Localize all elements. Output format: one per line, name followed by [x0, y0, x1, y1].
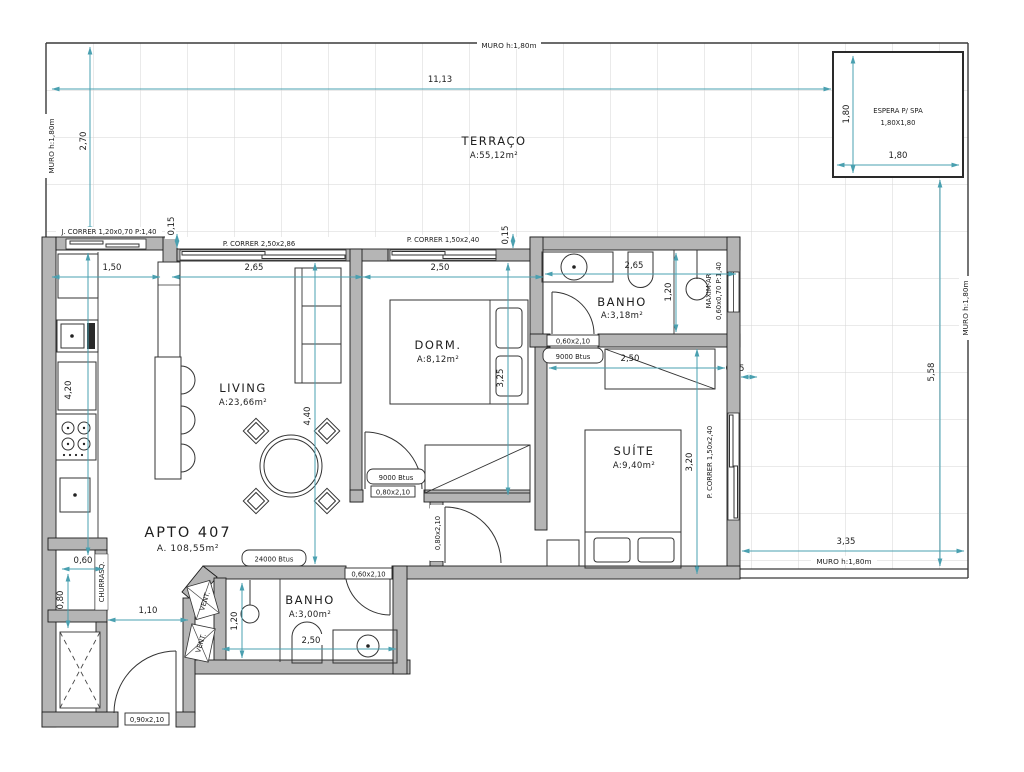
hvac-living-label: 24000 Btus — [255, 556, 294, 564]
wall-top-banho1 — [530, 237, 740, 250]
suite-name: SUÍTE — [614, 443, 655, 458]
dim-kitchen-h: 4,20 — [64, 381, 74, 400]
kitchen-appliance-knob — [73, 493, 77, 497]
dim-suite-h: 3,20 — [685, 453, 695, 472]
wall-bottom-b — [392, 566, 740, 579]
banho2-name: BANHO — [285, 593, 335, 607]
door-dorm-label: 0,80x2,10 — [376, 489, 410, 497]
island-stool-2 — [181, 406, 195, 434]
dim-terrace-width: 11,13 — [428, 75, 452, 85]
muro-right-label: MURO h:1,80m — [961, 280, 970, 335]
dim-kitchen-w: 1,50 — [103, 263, 122, 273]
banho2-sink-drain — [366, 644, 370, 648]
island-stool-1 — [181, 366, 195, 394]
wall-dorm-bottom-b — [424, 490, 530, 502]
dim-churrasq-h: 0,80 — [56, 591, 66, 610]
suite-pillow-2 — [638, 538, 674, 562]
wall-top-step — [163, 237, 177, 262]
stove-knob-4 — [81, 454, 83, 456]
living-area: A:23,66m² — [219, 398, 267, 408]
wall-dorm-bottom-a — [350, 490, 363, 502]
dim-banho1-w: 2,65 — [625, 261, 644, 271]
dim-spa-height: 1,80 — [842, 105, 852, 124]
stove-burner-dot-4 — [83, 443, 85, 445]
wall-banho2-bottom — [190, 660, 410, 674]
stove-burner-dot-2 — [83, 427, 85, 429]
door-banho2-label: 0,60x2,10 — [351, 571, 385, 579]
dim-living-w: 2,65 — [245, 263, 264, 273]
p-correr-living-label: P. CORRER 2,50x2,86 — [223, 240, 295, 248]
dim-banho1-h: 1,20 — [664, 283, 674, 302]
j-correr-label: J. CORRER 1,20x0,70 P:1,40 — [60, 228, 156, 236]
suite-nightstand — [547, 540, 579, 566]
dim-terrace-height: 2,70 — [79, 132, 89, 151]
dining-table — [260, 435, 322, 497]
floor-plan-sheet: MURO h:1,80m MURO h:1,80m MURO h:1,80m M… — [0, 0, 1024, 772]
hvac-dorm-label: 9000 Btus — [379, 474, 414, 482]
dorm-furniture — [390, 300, 530, 493]
dorm-name: DORM. — [415, 338, 462, 352]
floor-plan-drawing: MURO h:1,80m MURO h:1,80m MURO h:1,80m M… — [0, 0, 1024, 772]
door-banho1-label: 0,60x2,10 — [556, 338, 590, 346]
stove-knob-3 — [75, 454, 77, 456]
dorm-bed — [390, 300, 528, 404]
banho1-name: BANHO — [597, 295, 647, 309]
muro-bottom-label: MURO h:1,80m — [816, 557, 871, 566]
stove-burner-dot-3 — [67, 443, 69, 445]
stove-knob-2 — [69, 454, 71, 456]
kitchen-sink-drain — [70, 334, 74, 338]
island-stool-3 — [181, 444, 195, 472]
kitchen-stove — [56, 414, 96, 460]
dim-step-a: 0,15 — [167, 217, 177, 236]
wall-banho2-right — [393, 566, 407, 674]
p-correr-suite-label: P. CORRER 1,50x2,40 — [706, 426, 714, 498]
banho1-area: A:3,18m² — [601, 311, 643, 321]
dim-dorm-w: 2,50 — [431, 263, 450, 273]
wall-entry-jamb — [176, 712, 195, 727]
wall-banho2-left — [214, 578, 226, 672]
espera-spa-label: ESPERA P/ SPA — [873, 107, 923, 115]
wall-banho1-bottom-b — [598, 334, 740, 347]
banho1-sink-drain — [572, 265, 576, 269]
wall-dorm-right — [530, 237, 543, 347]
dim-dorm-h: 3,25 — [496, 369, 506, 388]
apto-area: A. 108,55m² — [157, 544, 219, 554]
door-suite-arc — [445, 507, 501, 563]
p-correr-dorm-label: P. CORRER 1,50x2,40 — [407, 236, 479, 244]
dorm-pillow-1 — [496, 308, 522, 348]
banho1-counter — [542, 252, 613, 282]
stove-knob-1 — [63, 454, 65, 456]
living-name: LIVING — [219, 381, 267, 395]
wall-bottom-a — [203, 566, 346, 579]
living-island — [155, 357, 181, 479]
apto-title: APTO 407 — [144, 525, 231, 541]
door-suite-label: 0,80x2,10 — [434, 516, 442, 550]
wall-churrasq-bottom — [48, 610, 107, 622]
living-tall-cabinet — [158, 262, 180, 357]
dim-bottom-width: 3,35 — [837, 537, 856, 547]
banho2-shower-head — [241, 605, 259, 623]
stove-burner-dot-1 — [67, 427, 69, 429]
wall-kitchen-bottom — [48, 538, 107, 550]
kitchen-cabinet-top — [58, 254, 98, 298]
door-banho1-arc — [552, 292, 594, 334]
wall-suite-left — [535, 347, 547, 530]
terraco-area: A:55,12m² — [470, 151, 518, 161]
churrasq-label: CHURRASQ. — [98, 562, 106, 602]
dim-banho2-h: 1,20 — [230, 612, 240, 631]
muro-top-label: MURO h:1,80m — [481, 41, 536, 50]
dim-suite-w: 2,50 — [621, 354, 640, 364]
dim-hall-w: 1,10 — [139, 606, 158, 616]
dim-living-h: 4,40 — [303, 407, 313, 426]
wall-dorm-left — [350, 249, 362, 502]
maxim-ar-label-line1: MAXIM-AR — [705, 273, 713, 308]
dim-spa-width: 1,80 — [889, 151, 908, 161]
dim-step-b: 0,15 — [501, 226, 511, 245]
wall-bottom-left — [42, 712, 118, 727]
muro-left-label: MURO h:1,80m — [47, 118, 56, 173]
suite-pillow-1 — [594, 538, 630, 562]
wall-left — [42, 237, 56, 727]
dining-chairs — [243, 418, 339, 513]
dim-banho2-w: 2,50 — [302, 636, 321, 646]
door-entry-label: 0,90x2,10 — [130, 716, 164, 724]
espera-spa-size: 1,80X1,80 — [881, 119, 916, 127]
banho2-area: A:3,00m² — [289, 610, 331, 620]
terraco-name: TERRAÇO — [460, 134, 526, 148]
dining-table-inner — [264, 439, 318, 493]
dim-churrasq-w: 0,60 — [74, 556, 93, 566]
door-entry-arc — [114, 651, 176, 713]
dim-right-height: 5,58 — [927, 363, 937, 382]
banho2-fixtures — [241, 579, 397, 663]
dorm-wardrobe-diagonal — [425, 445, 530, 493]
wall-suite-door-jamb-bottom — [430, 561, 443, 566]
kitchen-fixtures — [56, 252, 98, 538]
maxim-ar-label-line2: 0,60x0,70 P:1,40 — [715, 262, 723, 320]
suite-area: A:9,40m² — [613, 461, 655, 471]
dorm-area: A:8,12m² — [417, 355, 459, 365]
hvac-suite-label: 9000 Btus — [556, 353, 591, 361]
